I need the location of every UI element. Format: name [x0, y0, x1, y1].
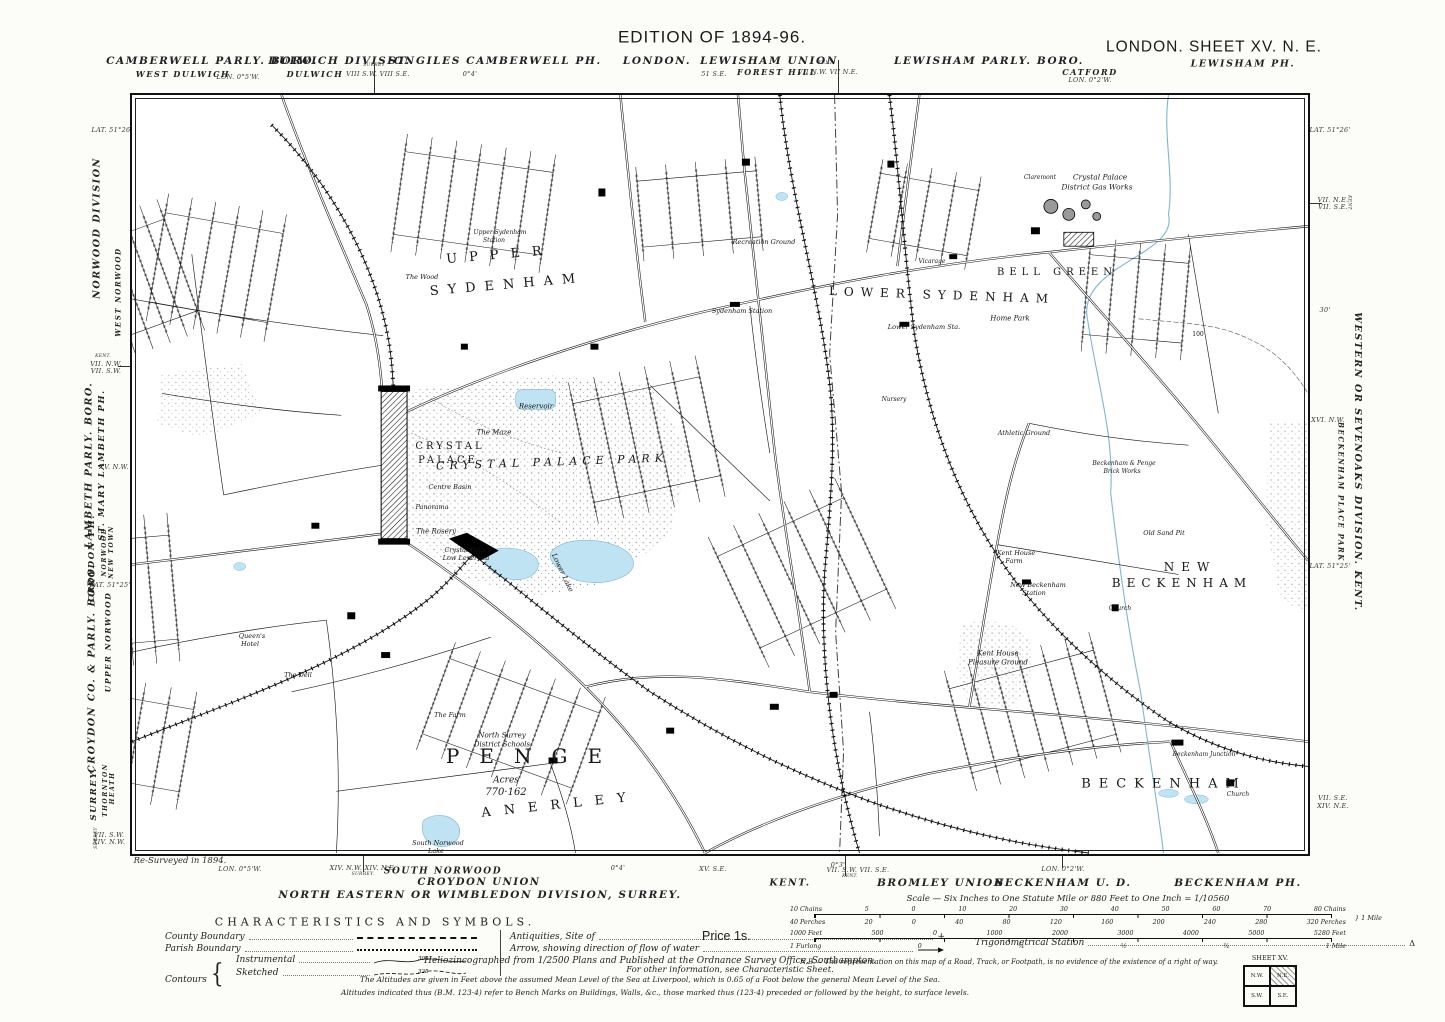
margin-label: KENT.: [95, 355, 111, 360]
graticule-tick: [1310, 203, 1322, 204]
margin-label: LAT. 51°25': [1309, 563, 1350, 570]
scale-tick-label: 200: [1153, 919, 1165, 926]
leader-dots: [249, 939, 353, 940]
scale-tick-label: ¾: [1223, 943, 1229, 950]
margin-label: KENT.: [818, 62, 834, 67]
legend-label: Antiquities, Site of: [510, 932, 595, 942]
margin-label: SOUTH NORWOOD: [384, 868, 502, 877]
margin-label: XV. N.W.: [99, 464, 129, 471]
scale-chains-labels: 10 Chains501020304050607080 Chains: [790, 906, 1346, 913]
scale-tick-label: 5: [865, 906, 869, 913]
margin-label: LON. 0°2'W.: [1041, 866, 1084, 873]
margin-label: NORWOOD DIVISION: [92, 157, 102, 299]
margin-label: BECKENHAM U. D.: [994, 878, 1131, 889]
scale-tick-label: 500: [872, 930, 884, 937]
legend-label: Parish Boundary: [165, 944, 241, 954]
legend-label: Instrumental: [236, 955, 295, 965]
scale-tick-label: 20: [865, 919, 873, 926]
scale-tick-label: 280: [1255, 919, 1267, 926]
scale-tick-label: 5280 Feet: [1314, 930, 1346, 937]
scale-tick-label: 2000: [1052, 930, 1068, 937]
scale-feet-labels: 1000 Feet5000100020003000400050005280 Fe…: [790, 930, 1346, 937]
margin-label: VII. S.E.: [1318, 795, 1348, 802]
quadrant-nw: N.W.: [1244, 966, 1270, 986]
scale-tick-label: 40 Perches: [790, 919, 825, 926]
margin-label: LAT. 51°26': [1309, 127, 1350, 134]
margin-label: 0°4': [611, 865, 626, 872]
scale-tick-label: ¼: [1018, 943, 1024, 950]
scale-mile-label: 1 Mile: [1355, 914, 1382, 922]
leader-dots: [245, 951, 353, 952]
margin-label: KENT.: [769, 878, 810, 888]
margin-label: DULWICH: [287, 70, 344, 78]
margin-label: LONDON.: [623, 56, 691, 67]
margin-label: BROMLEY UNION: [877, 878, 1005, 889]
county-boundary-symbol: [357, 937, 477, 939]
margin-label: XV. S.E.: [699, 866, 727, 873]
margin-label: SURREY.: [352, 873, 375, 878]
legend-label: County Boundary: [165, 932, 245, 942]
scale-tick-label: 40: [955, 919, 963, 926]
scale-tick-label: 0: [912, 919, 916, 926]
scale-tick-label: 4000: [1183, 930, 1199, 937]
scale-tick-label: 40: [1111, 906, 1119, 913]
quadrant-ne: N.E.: [1270, 966, 1296, 986]
scale-tick-label: 0: [933, 930, 937, 937]
right-of-way-note: N.B.— The representation on this map of …: [800, 958, 1440, 966]
legend-row-county: County Boundary: [165, 932, 477, 942]
margin-label: LEWISHAM PH.: [1191, 59, 1296, 69]
scale-tick-label: 0: [918, 943, 922, 950]
margin-label: BECKENHAM PLACE PARK: [1338, 422, 1345, 562]
margin-label: LON. 0°2'W.: [1068, 77, 1111, 84]
legend-info: For other information, see Characteristi…: [626, 965, 834, 975]
scale-tick-label: 320 Perches: [1307, 919, 1346, 926]
margin-label: SURREY.: [90, 767, 99, 820]
legend-divider: [500, 930, 501, 976]
margin-label: VII. S.W. VII. S.E.: [827, 867, 890, 874]
scale-tick-label: 160: [1101, 919, 1113, 926]
margin-label: XIV. N.E.: [1317, 803, 1349, 810]
sheet-divider-tick: [363, 856, 364, 872]
scale-furlong-labels: 1 Furlong0¼½¾1 Mile: [790, 943, 1346, 950]
legend-label: Sketched: [236, 968, 279, 978]
margin-label: Re-Surveyed in 1894.: [134, 857, 227, 866]
sheet-divider-tick: [374, 64, 375, 93]
margin-label: NORTH EASTERN OR WIMBLEDON DIVISION, SUR…: [278, 890, 681, 901]
margin-label: ST. GILES CAMBERWELL PH.: [388, 56, 601, 67]
scale-bar-chains: [814, 914, 1332, 918]
graticule-tick: [118, 366, 130, 367]
scale-tick-label: 80: [1003, 919, 1011, 926]
brace: {: [211, 957, 224, 988]
scale-tick-label: 5000: [1248, 930, 1264, 937]
legend-title: CHARACTERISTICS AND SYMBOLS.: [215, 916, 535, 929]
sheet-index-grid: N.W. N.E. S.W. S.E.: [1243, 965, 1297, 1007]
leader-dots: [703, 951, 913, 952]
scale-tick-label: 50: [1162, 906, 1170, 913]
margin-label: XIV. N.W.: [93, 839, 126, 846]
legend-label: Arrow, showing direction of flow of wate…: [510, 944, 699, 954]
sheet-divider-tick: [838, 60, 839, 93]
margin-label: LEWISHAM PARLY. BORO.: [894, 56, 1084, 67]
sheet-index-diagram: SHEET XV. N.W. N.E. S.W. S.E.: [1238, 954, 1302, 1007]
margin-label: LAT. 51°26': [91, 127, 132, 134]
scale-tick-label: 70: [1263, 906, 1271, 913]
scale-title: Scale — Six Inches to One Statute Mile o…: [790, 894, 1346, 904]
scale-tick-label: 60: [1212, 906, 1220, 913]
quadrant-sw: S.W.: [1244, 986, 1270, 1006]
margin-label: BECKENHAM PH.: [1174, 878, 1302, 889]
leader-dots: [283, 975, 371, 976]
legend-row-contours: Contours {: [165, 961, 228, 985]
scale-tick-label: 240: [1204, 919, 1216, 926]
margin-label: WEST NORWOOD: [115, 247, 122, 336]
legend-label: Contours: [165, 975, 207, 985]
margin-label: EDITION OF 1894-96.: [618, 29, 806, 46]
altitude-note-2: Altitudes indicated thus (B.M. 123·4) re…: [341, 988, 969, 997]
scale-tick-label: ½: [1121, 943, 1127, 950]
margin-label: VII N.W. VII N.E.: [798, 69, 858, 76]
sheet-index-title: SHEET XV.: [1238, 954, 1302, 962]
scale-bar-feet: [814, 938, 1332, 942]
scale-tick-label: 0: [912, 906, 916, 913]
scale-tick-label: 1000: [986, 930, 1002, 937]
margin-label: WESTERN OR SEVENOAKS DIVISION. KENT.: [1352, 312, 1362, 612]
price-label: Price 1s.: [702, 929, 751, 943]
os-map-sheet: EDITION OF 1894-96.LONDON. SHEET XV. N. …: [0, 0, 1445, 1022]
scale-tick-label: 120: [1050, 919, 1062, 926]
sheet-divider-tick: [845, 856, 846, 876]
scale-tick-label: 10: [958, 906, 966, 913]
map-canvas: [132, 95, 1308, 854]
margin-label: CROYDON CO. & PARLY. BORO.: [87, 563, 97, 773]
scale-tick-label: 3000: [1117, 930, 1133, 937]
scale-tick-label: 1000 Feet: [790, 930, 822, 937]
map-frame: Upper SydenhamStationThe WoodUPPERSYDENH…: [130, 93, 1310, 856]
scale-block: Scale — Six Inches to One Statute Mile o…: [790, 894, 1346, 950]
margin-label: LONDON. SHEET XV. N. E.: [1106, 39, 1322, 55]
scale-perches-labels: 40 Perches2004080120160200240280320 Perc…: [790, 919, 1346, 926]
margin-label: NEW TOWN: [109, 525, 115, 579]
margin-label: 30': [1320, 307, 1331, 314]
margin-label: LON. 0°5'W.: [218, 866, 261, 873]
scale-tick-label: 80 Chains: [1314, 906, 1346, 913]
scale-tick-label: 1 Furlong: [790, 943, 821, 950]
margin-label: CROYDON UNION: [417, 878, 540, 888]
parish-boundary-symbol: [357, 949, 477, 951]
margin-label: HEATH: [110, 772, 116, 805]
sheet-divider-tick: [1062, 856, 1063, 868]
margin-label: VII. S.W.: [91, 368, 122, 375]
margin-label: KENT.: [1346, 195, 1351, 211]
margin-label: 0°4': [463, 71, 478, 78]
margin-label: 51 S.E.: [701, 71, 727, 78]
scale-tick-label: 30: [1060, 906, 1068, 913]
margin-label: VIII S.W. VIII S.E.: [346, 71, 410, 78]
scale-tick-label: 1 Mile: [1326, 943, 1346, 950]
trig-station-symbol: Δ: [1409, 939, 1415, 948]
scale-tick-label: 20: [1009, 906, 1017, 913]
margin-label: VII. S.E.: [1318, 204, 1348, 211]
margin-label: LON. 0°5'W.: [216, 74, 259, 81]
leader-dots: [299, 962, 370, 963]
altitude-note-1: The Altitudes are given in Feet above th…: [360, 975, 940, 984]
margin-label: UPPER NORWOOD: [104, 592, 112, 693]
legend-row-parish: Parish Boundary: [165, 944, 477, 954]
quadrant-se: S.E.: [1270, 986, 1296, 1006]
scale-tick-label: 10 Chains: [790, 906, 822, 913]
